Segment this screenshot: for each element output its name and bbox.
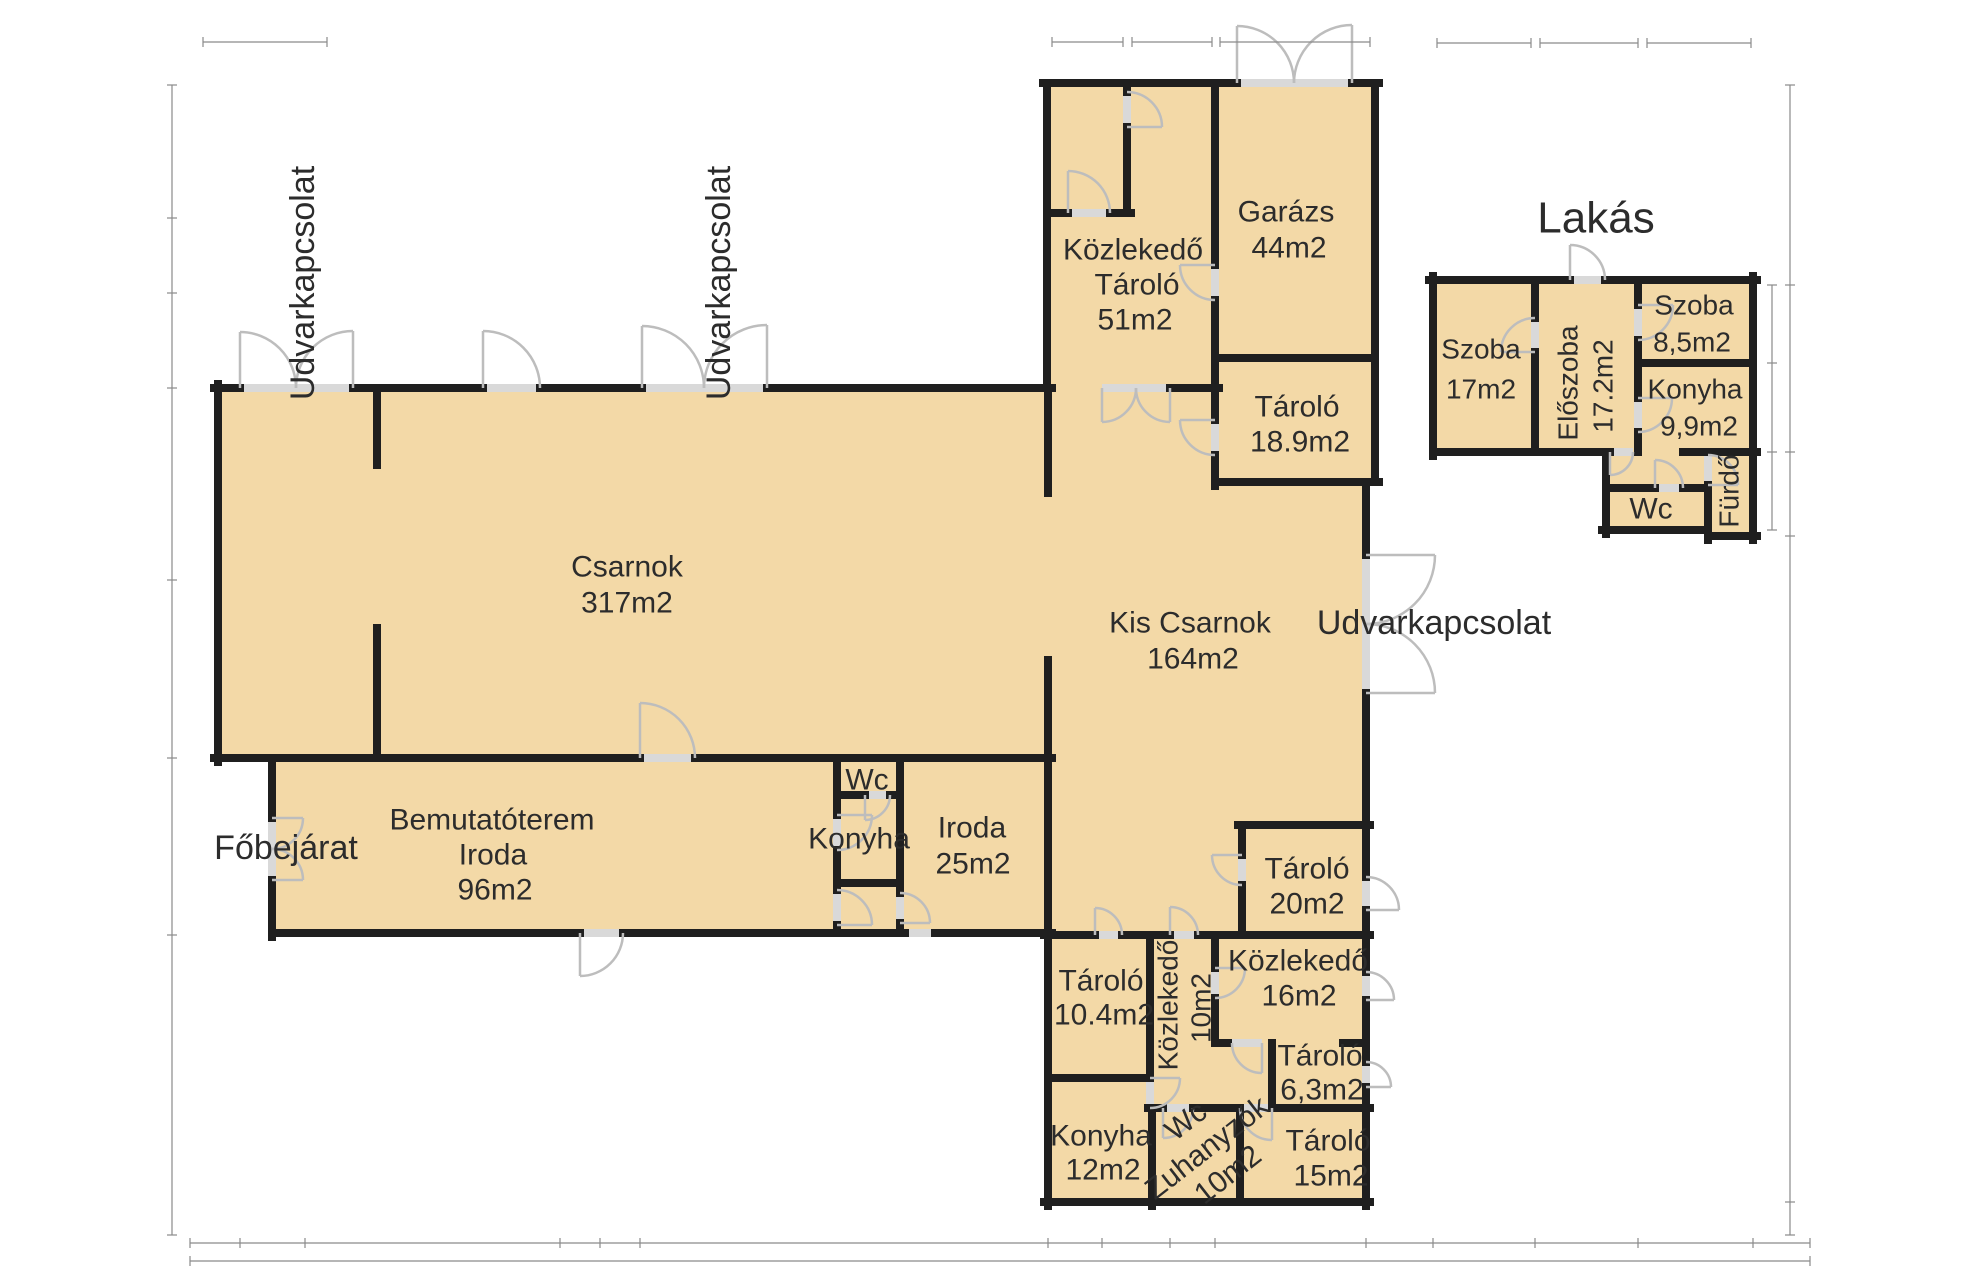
label-bemutatoterem-name2: Iroda (459, 839, 528, 872)
label-fobejarat: Főbejárat (214, 829, 358, 867)
label-csarnok-area: 317m2 (581, 587, 673, 620)
label-kis-csarnok-name: Kis Csarnok (1109, 607, 1272, 640)
label-konyha-uzem: Konyha (808, 823, 910, 856)
label-tarolo-15-name: Tároló (1285, 1125, 1370, 1158)
label-kozlekedo-tarolo-name2: Tároló (1094, 269, 1179, 302)
label-tarolo-20-area: 20m2 (1269, 888, 1344, 921)
label-wc-lakas: Wc (1629, 493, 1672, 526)
label-bemutatoterem-area: 96m2 (457, 874, 532, 907)
label-tarolo-18-9-area: 18.9m2 (1250, 426, 1350, 459)
label-kozlekedo-10-area: 10m2 (1186, 973, 1217, 1043)
label-kozlekedo-tarolo-area: 51m2 (1097, 304, 1172, 337)
label-udvarkapcsolat-right: Udvarkapcsolat (1317, 604, 1552, 642)
label-eloszoba-area: 17.2m2 (1588, 339, 1619, 432)
label-konyha-12-area: 12m2 (1065, 1154, 1140, 1187)
door-arc (1570, 245, 1605, 280)
label-lakas-title: Lakás (1537, 194, 1654, 243)
label-udvarkapcsolat-left: Udvarkapcsolat (284, 165, 322, 400)
label-garazs-area: 44m2 (1251, 232, 1326, 265)
door-arc (642, 326, 704, 388)
label-tarolo-20-name: Tároló (1264, 853, 1349, 886)
label-udvarkapcsolat-mid: Udvarkapcsolat (700, 165, 738, 400)
label-eloszoba-name: Előszoba (1553, 325, 1584, 441)
label-kozlekedo-16-name: Közlekedő (1228, 945, 1368, 978)
label-iroda-25-area: 25m2 (935, 848, 1010, 881)
label-szoba-17-name: Szoba (1441, 334, 1521, 365)
label-konyha-12-name: Konyha (1050, 1120, 1152, 1153)
label-csarnok-name: Csarnok (571, 551, 684, 584)
label-kozlekedo-tarolo-name: Közlekedő (1063, 234, 1203, 267)
door-arc (1237, 26, 1294, 83)
floor-plan-page: Csarnok 317m2 Kis Csarnok 164m2 Közleked… (0, 0, 1985, 1280)
label-konyha-9-9-area: 9,9m2 (1660, 411, 1738, 442)
door-arc (1294, 25, 1352, 83)
floor-plan-canvas: Csarnok 317m2 Kis Csarnok 164m2 Közleked… (0, 0, 1985, 1280)
label-kozlekedo-10-name: Közlekedő (1153, 940, 1184, 1071)
label-bemutatoterem-name: Bemutatóterem (389, 804, 594, 837)
label-tarolo-10-4-name: Tároló (1058, 965, 1143, 998)
door-arc (483, 331, 540, 388)
label-tarolo-18-9-name: Tároló (1254, 391, 1339, 424)
label-tarolo-15-area: 15m2 (1293, 1160, 1368, 1193)
room-fills (218, 83, 1753, 1202)
label-szoba-8-5-name: Szoba (1654, 290, 1734, 321)
label-furdo: Fürdő (1714, 454, 1745, 527)
door-arc (1366, 972, 1394, 1000)
label-tarolo-10-4-area: 10.4m2 (1054, 999, 1154, 1032)
label-konyha-9-9-name: Konyha (1648, 374, 1743, 405)
label-szoba-8-5-area: 8,5m2 (1653, 327, 1731, 358)
door-arc (1366, 877, 1399, 910)
label-tarolo-6-3-area: 6,3m2 (1280, 1074, 1363, 1107)
label-kozlekedo-16-area: 16m2 (1261, 980, 1336, 1013)
label-tarolo-6-3-name: Tároló (1277, 1040, 1362, 1073)
label-garazs-name: Garázs (1238, 196, 1335, 229)
label-szoba-17-area: 17m2 (1446, 374, 1516, 405)
label-wc-uzem: Wc (845, 764, 888, 797)
label-kis-csarnok-area: 164m2 (1147, 643, 1239, 676)
label-iroda-25-name: Iroda (938, 812, 1007, 845)
door-arc (580, 933, 623, 976)
